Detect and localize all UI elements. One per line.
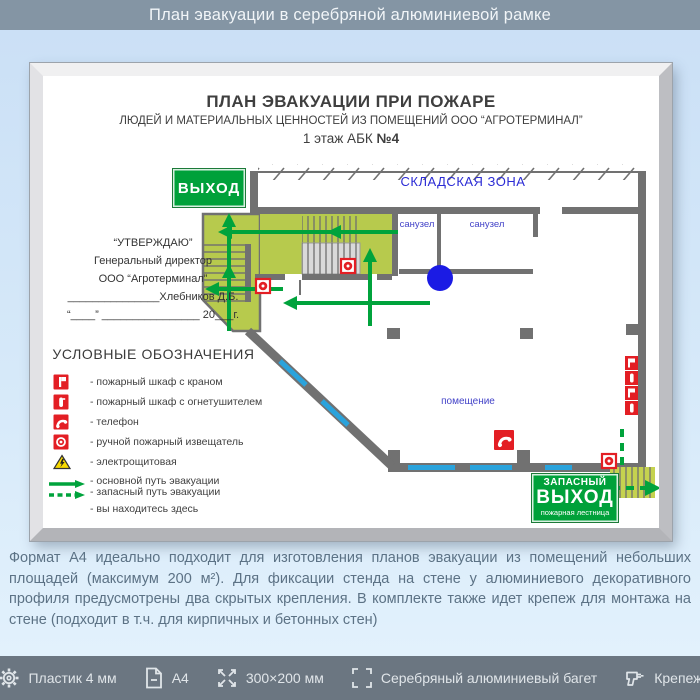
product-description: Формат А4 идеально подходит для изготовл…: [9, 548, 691, 630]
you-are-here-marker: [427, 265, 453, 291]
approval-block: “УТВЕРЖДАЮ” Генеральный директор ООО “Аг…: [47, 234, 259, 324]
fire-cabinet-hose-icon: [53, 374, 69, 395]
approval-line: ООО “Агротерминал”: [47, 270, 259, 288]
secondary-route-arrow-icon: [49, 487, 85, 505]
legend-heading: УСЛОВНЫЕ ОБОЗНАЧЕНИЯ: [51, 346, 256, 362]
product-card: План эвакуации в серебряной алюминиевой …: [0, 0, 700, 700]
spec-label: Серебряный алюминиевый багет: [381, 670, 597, 686]
approval-line: _______________Хлебников Д.Б.: [47, 288, 259, 306]
wc-label-1: санузел: [387, 219, 447, 230]
header-bar: План эвакуации в серебряной алюминиевой …: [0, 0, 700, 30]
aluminum-frame: ПЛАН ЭВАКУАЦИИ ПРИ ПОЖАРЕ ЛЮДЕЙ И МАТЕРИ…: [30, 63, 672, 541]
spec-dimensions: 300×200 мм: [215, 666, 324, 690]
spec-label: Крепеж: [654, 670, 700, 686]
spec-label: Пластик 4 мм: [28, 670, 116, 686]
approval-line: “УТВЕРЖДАЮ”: [47, 234, 259, 252]
spec-frame: Серебряный алюминиевый багет: [350, 666, 597, 690]
fastener-drill-icon: [623, 666, 647, 690]
legend-label: - вы находитесь здесь: [90, 503, 198, 515]
page-title: План эвакуации в серебряной алюминиевой …: [149, 6, 551, 25]
legend-label: - пожарный шкаф с краном: [90, 376, 223, 388]
spec-format: А4: [143, 666, 189, 690]
spec-material: Пластик 4 мм: [0, 666, 117, 690]
room-label: помещение: [428, 396, 508, 407]
emergency-exit-sign: ЗАПАСНЫЙ ВЫХОД пожарная лестница: [532, 474, 618, 522]
wc-label-2: санузел: [457, 219, 517, 230]
spec-fastener: Крепеж: [623, 666, 700, 690]
dimensions-icon: [215, 666, 239, 690]
emergency-sign-line2: ВЫХОД: [532, 488, 618, 507]
legend-label: - пожарный шкаф с огнетушителем: [90, 396, 262, 408]
phone-plan-icon: [494, 430, 514, 450]
electrical-hazard-icon: [53, 454, 71, 475]
legend-label: - электрощитовая: [90, 456, 177, 468]
exit-sign: ВЫХОД: [173, 169, 245, 207]
window-strips: [408, 465, 572, 470]
gear-icon: [0, 666, 21, 690]
evacuation-plan-poster: ПЛАН ЭВАКУАЦИИ ПРИ ПОЖАРЕ ЛЮДЕЙ И МАТЕРИ…: [43, 76, 659, 528]
scene-background: ПЛАН ЭВАКУАЦИИ ПРИ ПОЖАРЕ ЛЮДЕЙ И МАТЕРИ…: [0, 30, 700, 656]
approval-line: “____” ________________ 20___г.: [47, 306, 259, 324]
legend-label: - ручной пожарный извещатель: [90, 436, 244, 448]
emergency-sign-line3: пожарная лестница: [532, 508, 618, 517]
frame-icon: [350, 666, 374, 690]
fire-cabinet-extinguisher-icon: [53, 394, 69, 415]
manual-call-point-icon: [53, 434, 69, 455]
phone-icon: [53, 414, 69, 435]
warehouse-zone-label: СКЛАДСКАЯ ЗОНА: [373, 174, 553, 189]
legend-label: - телефон: [90, 416, 139, 428]
legend-label: - запасный путь эвакуации: [90, 486, 220, 498]
fire-cabinet-icons: [625, 356, 638, 415]
document-icon: [143, 666, 165, 690]
spec-label: А4: [172, 670, 189, 686]
legend: УСЛОВНЫЕ ОБОЗНАЧЕНИЯ - пожарный шкаф с к…: [51, 346, 301, 362]
spec-label: 300×200 мм: [246, 670, 324, 686]
spec-bar: Пластик 4 мм А4 300×200 мм Серебряный ал…: [0, 656, 700, 700]
approval-line: Генеральный директор: [47, 252, 259, 270]
